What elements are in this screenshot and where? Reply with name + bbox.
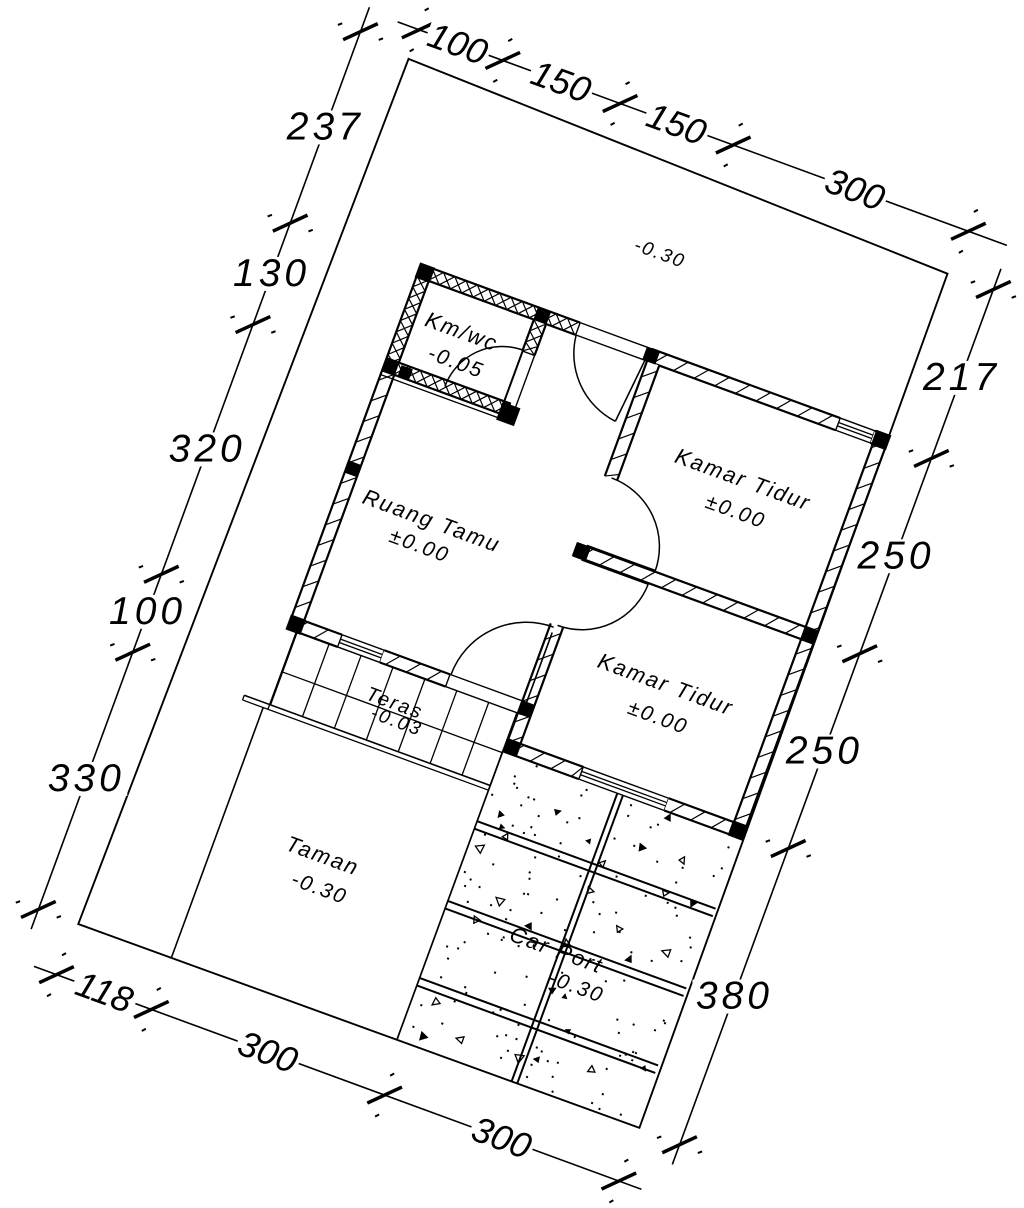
svg-text:380: 380 [696, 975, 773, 1018]
svg-text:250: 250 [785, 730, 863, 773]
svg-text:237: 237 [286, 105, 364, 148]
svg-text:320: 320 [169, 427, 246, 470]
svg-text:130: 130 [233, 252, 310, 295]
svg-text:250: 250 [856, 534, 934, 577]
svg-text:100: 100 [109, 590, 186, 633]
svg-text:330: 330 [48, 757, 125, 800]
svg-text:217: 217 [922, 356, 1000, 399]
